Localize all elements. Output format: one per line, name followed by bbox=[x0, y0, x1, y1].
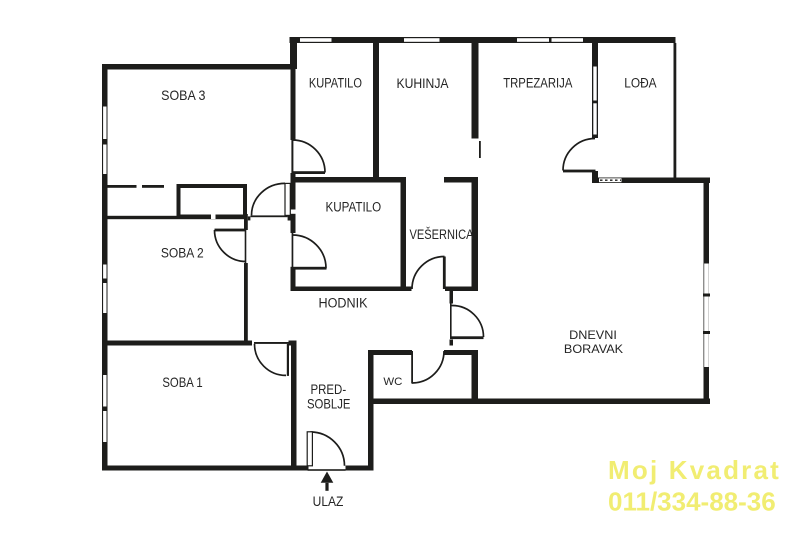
svg-text:Moj Kvadrat: Moj Kvadrat bbox=[608, 455, 781, 485]
svg-text:TRPEZARIJA: TRPEZARIJA bbox=[503, 74, 573, 90]
svg-text:SOBA 1: SOBA 1 bbox=[162, 374, 202, 390]
svg-text:SOBA 2: SOBA 2 bbox=[161, 245, 204, 261]
svg-text:ULAZ: ULAZ bbox=[313, 493, 344, 509]
svg-text:LOĐA: LOĐA bbox=[624, 75, 657, 91]
svg-text:011/334-88-36: 011/334-88-36 bbox=[608, 487, 776, 517]
svg-text:KUPATILO: KUPATILO bbox=[325, 199, 381, 215]
svg-text:SOBA 3: SOBA 3 bbox=[161, 87, 205, 103]
svg-text:SOBLJE: SOBLJE bbox=[307, 395, 350, 411]
svg-text:DNEVNI: DNEVNI bbox=[569, 328, 617, 342]
svg-text:KUHINJA: KUHINJA bbox=[396, 75, 448, 91]
svg-text:KUPATILO: KUPATILO bbox=[309, 75, 362, 91]
svg-text:VEŠERNICA: VEŠERNICA bbox=[410, 226, 474, 243]
svg-text:BORAVAK: BORAVAK bbox=[564, 342, 624, 356]
svg-text:WC: WC bbox=[383, 376, 402, 388]
svg-text:HODNIK: HODNIK bbox=[319, 295, 368, 311]
